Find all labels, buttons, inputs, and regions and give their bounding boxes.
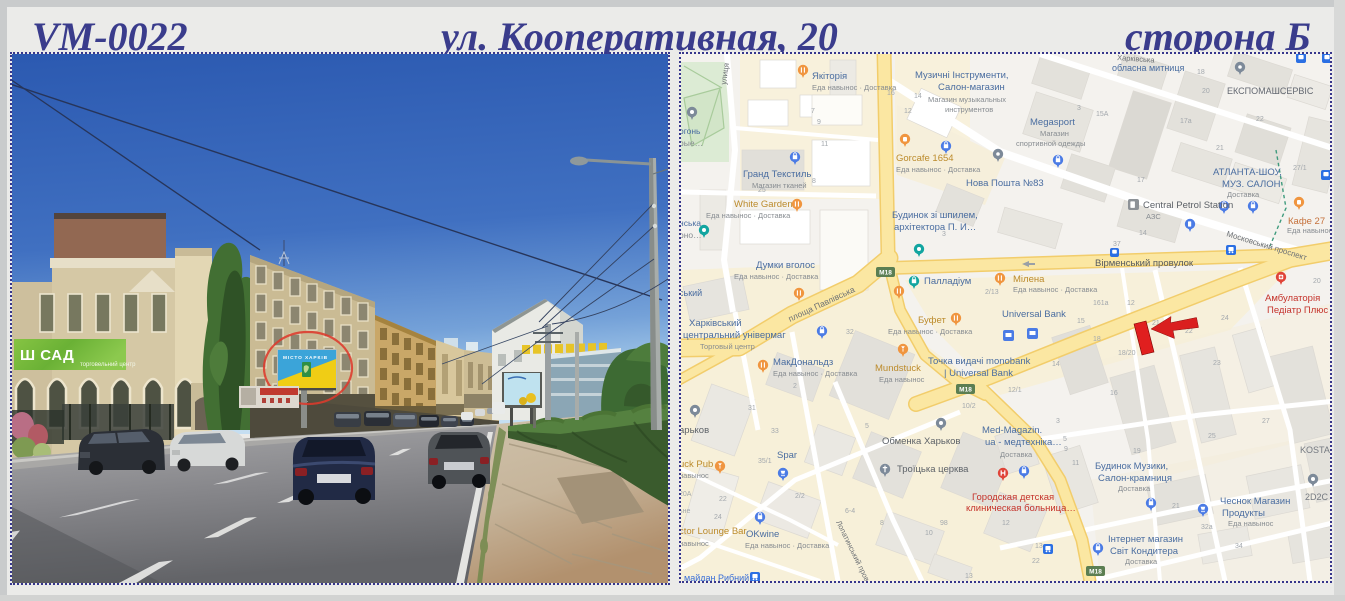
- svg-text:20: 20: [1202, 88, 1210, 95]
- svg-text:Еда навынос · Доставка: Еда навынос · Доставка: [812, 83, 897, 92]
- svg-text:АТЛАНТА-ШОУ,: АТЛАНТА-ШОУ,: [1213, 167, 1282, 178]
- svg-text:М18: М18: [1089, 569, 1102, 576]
- svg-text:клиническая больница…: клиническая больница…: [966, 503, 1076, 514]
- svg-text:8: 8: [812, 178, 816, 185]
- svg-text:нська: нська: [681, 218, 701, 228]
- svg-text:20A: 20A: [681, 491, 692, 498]
- svg-text:15A: 15A: [1096, 111, 1109, 118]
- svg-text:Троїцька церква: Троїцька церква: [897, 464, 969, 475]
- svg-text:32: 32: [846, 329, 854, 336]
- svg-text:навынос: навынос: [681, 539, 709, 548]
- svg-text:8: 8: [880, 520, 884, 527]
- svg-text:Обменка Харьков: Обменка Харьков: [882, 436, 960, 447]
- svg-text:Доставка: Доставка: [1227, 190, 1260, 199]
- svg-text:16: 16: [887, 90, 895, 97]
- svg-text:2D2C: 2D2C: [1305, 492, 1329, 502]
- svg-text:27: 27: [1262, 418, 1270, 425]
- svg-text:рые…: рые…: [681, 138, 703, 148]
- svg-text:Чеснок Магазин: Чеснок Магазин: [1220, 496, 1290, 507]
- svg-text:21: 21: [1216, 145, 1224, 152]
- svg-text:Палладіум: Палладіум: [924, 276, 971, 287]
- svg-text:Педіатр Плюс: Педіатр Плюс: [1267, 305, 1328, 316]
- svg-text:АЗС: АЗС: [1146, 212, 1161, 221]
- svg-text:центральний універмаг: центральний універмаг: [683, 330, 786, 341]
- svg-text:13: 13: [965, 573, 973, 580]
- svg-text:арьков: арьков: [681, 425, 709, 436]
- svg-text:| Universal Bank: | Universal Bank: [944, 368, 1013, 379]
- svg-text:25: 25: [758, 187, 766, 194]
- svg-text:Нова Пошта №83: Нова Пошта №83: [966, 178, 1044, 189]
- svg-text:М18: М18: [879, 270, 892, 277]
- svg-text:Еда навынос · Доставка: Еда навынос · Доставка: [1013, 285, 1098, 294]
- svg-text:Магазин: Магазин: [1040, 129, 1069, 138]
- svg-text:9: 9: [1064, 446, 1068, 453]
- svg-text:5: 5: [1063, 436, 1067, 443]
- svg-text:Spar: Spar: [777, 450, 797, 461]
- svg-text:огонь: огонь: [681, 126, 701, 136]
- svg-text:14: 14: [914, 93, 922, 100]
- svg-text:34: 34: [1235, 543, 1243, 550]
- svg-text:Світ Кондитера: Світ Кондитера: [1110, 546, 1179, 557]
- svg-text:18/20: 18/20: [1118, 350, 1136, 357]
- svg-text:Med-Magazin.: Med-Magazin.: [982, 425, 1042, 436]
- svg-text:МІСТО ХАРКІВ: МІСТО ХАРКІВ: [283, 355, 328, 361]
- svg-text:торговельний центр: торговельний центр: [80, 361, 136, 368]
- svg-text:19: 19: [1133, 448, 1141, 455]
- svg-text:3: 3: [1077, 105, 1081, 112]
- svg-text:рно…: рно…: [681, 230, 702, 240]
- svg-text:инструментов: инструментов: [945, 105, 993, 114]
- svg-text:М18: М18: [959, 387, 972, 394]
- svg-text:Якіторія: Якіторія: [812, 71, 847, 82]
- svg-text:Салон-магазин: Салон-магазин: [938, 82, 1005, 93]
- svg-text:Доставка: Доставка: [1125, 557, 1158, 566]
- svg-text:Еда навынос · Доставка: Еда навынос · Доставка: [734, 272, 819, 281]
- svg-text:Megasport: Megasport: [1030, 117, 1075, 128]
- svg-text:ЕКСПОМАШСЕРВІС: ЕКСПОМАШСЕРВІС: [1227, 86, 1314, 96]
- svg-text:Еда навынос · Доставка: Еда навынос · Доставка: [745, 541, 830, 550]
- svg-text:32a: 32a: [1201, 524, 1213, 531]
- svg-text:Central Petrol Station: Central Petrol Station: [1143, 200, 1233, 211]
- svg-text:21: 21: [1172, 503, 1180, 510]
- svg-text:2/13: 2/13: [985, 289, 999, 296]
- svg-text:25: 25: [1208, 433, 1216, 440]
- svg-text:17a: 17a: [1180, 118, 1192, 125]
- svg-text:2/2: 2/2: [795, 493, 805, 500]
- svg-text:Ш САД: Ш САД: [20, 347, 74, 364]
- svg-text:Будинок зі шпилем,: Будинок зі шпилем,: [892, 210, 978, 221]
- svg-text:18: 18: [1197, 69, 1205, 76]
- svg-text:35/1: 35/1: [758, 458, 772, 465]
- svg-text:Точка видачі monobank: Точка видачі monobank: [928, 356, 1031, 367]
- svg-text:uck Pub: uck Pub: [681, 459, 713, 470]
- svg-text:Вірменський провулок: Вірменський провулок: [1095, 258, 1194, 269]
- svg-text:Буфет: Буфет: [918, 315, 946, 326]
- svg-text:14: 14: [1052, 361, 1060, 368]
- svg-text:OKwine: OKwine: [746, 529, 779, 540]
- svg-text:Мілена: Мілена: [1013, 274, 1045, 285]
- svg-text:Еда навынос · Доставка: Еда навынос · Доставка: [896, 165, 981, 174]
- svg-text:6-4: 6-4: [845, 508, 855, 515]
- svg-text:15: 15: [1077, 318, 1085, 325]
- svg-text:12: 12: [904, 108, 912, 115]
- svg-text:11: 11: [821, 141, 828, 148]
- svg-text:Еда навынос · Доставка: Еда навынос · Доставка: [773, 369, 858, 378]
- svg-text:KOSTA C: KOSTA C: [1300, 445, 1330, 455]
- svg-text:24: 24: [1221, 315, 1229, 322]
- svg-text:навынос: навынос: [681, 471, 709, 480]
- svg-text:Еда навынос: Еда навынос: [1228, 519, 1274, 528]
- svg-text:Universal Bank: Universal Bank: [1002, 309, 1066, 320]
- svg-text:10: 10: [925, 530, 933, 537]
- svg-text:Торговый центр: Торговый центр: [700, 342, 755, 351]
- svg-text:Доставка: Доставка: [1118, 484, 1151, 493]
- svg-text:Городская детская: Городская детская: [972, 492, 1054, 503]
- svg-text:Амбулаторія: Амбулаторія: [1265, 293, 1320, 304]
- svg-text:11: 11: [1072, 460, 1079, 467]
- svg-text:White Garden: White Garden: [734, 199, 793, 210]
- svg-text:10/2: 10/2: [962, 403, 976, 410]
- svg-text:161a: 161a: [1093, 300, 1109, 307]
- svg-text:Гранд Текстиль: Гранд Текстиль: [743, 169, 811, 180]
- svg-text:22: 22: [1032, 558, 1040, 565]
- svg-text:Еда навынос: Еда навынос: [879, 375, 925, 384]
- svg-text:майдан Рибний: майдан Рибний: [684, 573, 749, 581]
- svg-text:12: 12: [1127, 300, 1135, 307]
- svg-text:Магазин музыкальных: Магазин музыкальных: [928, 95, 1006, 104]
- svg-text:7: 7: [811, 108, 815, 115]
- svg-text:9: 9: [817, 119, 821, 126]
- svg-text:24: 24: [714, 514, 722, 521]
- svg-text:98: 98: [940, 520, 948, 527]
- svg-text:27/1: 27/1: [1293, 165, 1307, 172]
- svg-text:3: 3: [942, 231, 946, 238]
- svg-text:Думки вголос: Думки вголос: [756, 260, 815, 271]
- svg-text:Інтернет магазин: Інтернет магазин: [1108, 534, 1183, 545]
- svg-text:2: 2: [793, 383, 797, 390]
- svg-text:13: 13: [1035, 543, 1043, 550]
- svg-text:Доставка: Доставка: [1000, 450, 1033, 459]
- svg-text:23: 23: [1213, 360, 1221, 367]
- svg-text:22: 22: [1256, 116, 1264, 123]
- svg-text:Музичні Інструменти,: Музичні Інструменти,: [915, 70, 1009, 81]
- svg-text:37: 37: [1113, 241, 1121, 248]
- svg-text:Еда навынос: Еда навынос: [1287, 226, 1330, 235]
- svg-text:33: 33: [771, 428, 779, 435]
- svg-text:Харківський: Харківський: [689, 318, 742, 329]
- svg-text:5: 5: [865, 423, 869, 430]
- svg-text:22: 22: [719, 496, 727, 503]
- svg-text:обласна митниця: обласна митниця: [1112, 63, 1184, 73]
- svg-text:12/1: 12/1: [1008, 387, 1022, 394]
- svg-text:МУЗ. САЛОН: МУЗ. САЛОН: [1222, 179, 1281, 190]
- svg-text:31: 31: [748, 405, 756, 412]
- svg-text:20: 20: [1313, 278, 1321, 285]
- svg-text:18: 18: [1093, 336, 1101, 343]
- svg-text:Еда навынос · Доставка: Еда навынос · Доставка: [706, 211, 791, 220]
- svg-text:Еда навынос · Доставка: Еда навынос · Доставка: [888, 327, 973, 336]
- svg-text:3: 3: [1056, 418, 1060, 425]
- svg-text:МакДональдз: МакДональдз: [773, 357, 833, 368]
- svg-text:Будинок Музики,: Будинок Музики,: [1095, 461, 1168, 472]
- svg-text:16: 16: [1110, 390, 1118, 397]
- svg-text:12: 12: [1002, 520, 1010, 527]
- svg-text:ua - медтехніка…: ua - медтехніка…: [985, 437, 1062, 448]
- svg-text:ьне: ьне: [681, 508, 691, 515]
- svg-text:ctor Lounge Bar: ctor Lounge Bar: [681, 526, 747, 537]
- svg-text:Gorcafe 1654: Gorcafe 1654: [896, 153, 954, 164]
- svg-text:ський: ський: [681, 288, 702, 298]
- svg-text:17: 17: [1137, 177, 1145, 184]
- svg-text:14: 14: [1139, 230, 1147, 237]
- svg-text:архітектора П. И…: архітектора П. И…: [894, 222, 976, 233]
- svg-text:спортивной одежды: спортивной одежды: [1016, 139, 1085, 148]
- svg-text:Продукты: Продукты: [1222, 508, 1265, 519]
- svg-text:Mundstuck: Mundstuck: [875, 363, 921, 374]
- svg-text:Салон-крамниця: Салон-крамниця: [1098, 473, 1172, 484]
